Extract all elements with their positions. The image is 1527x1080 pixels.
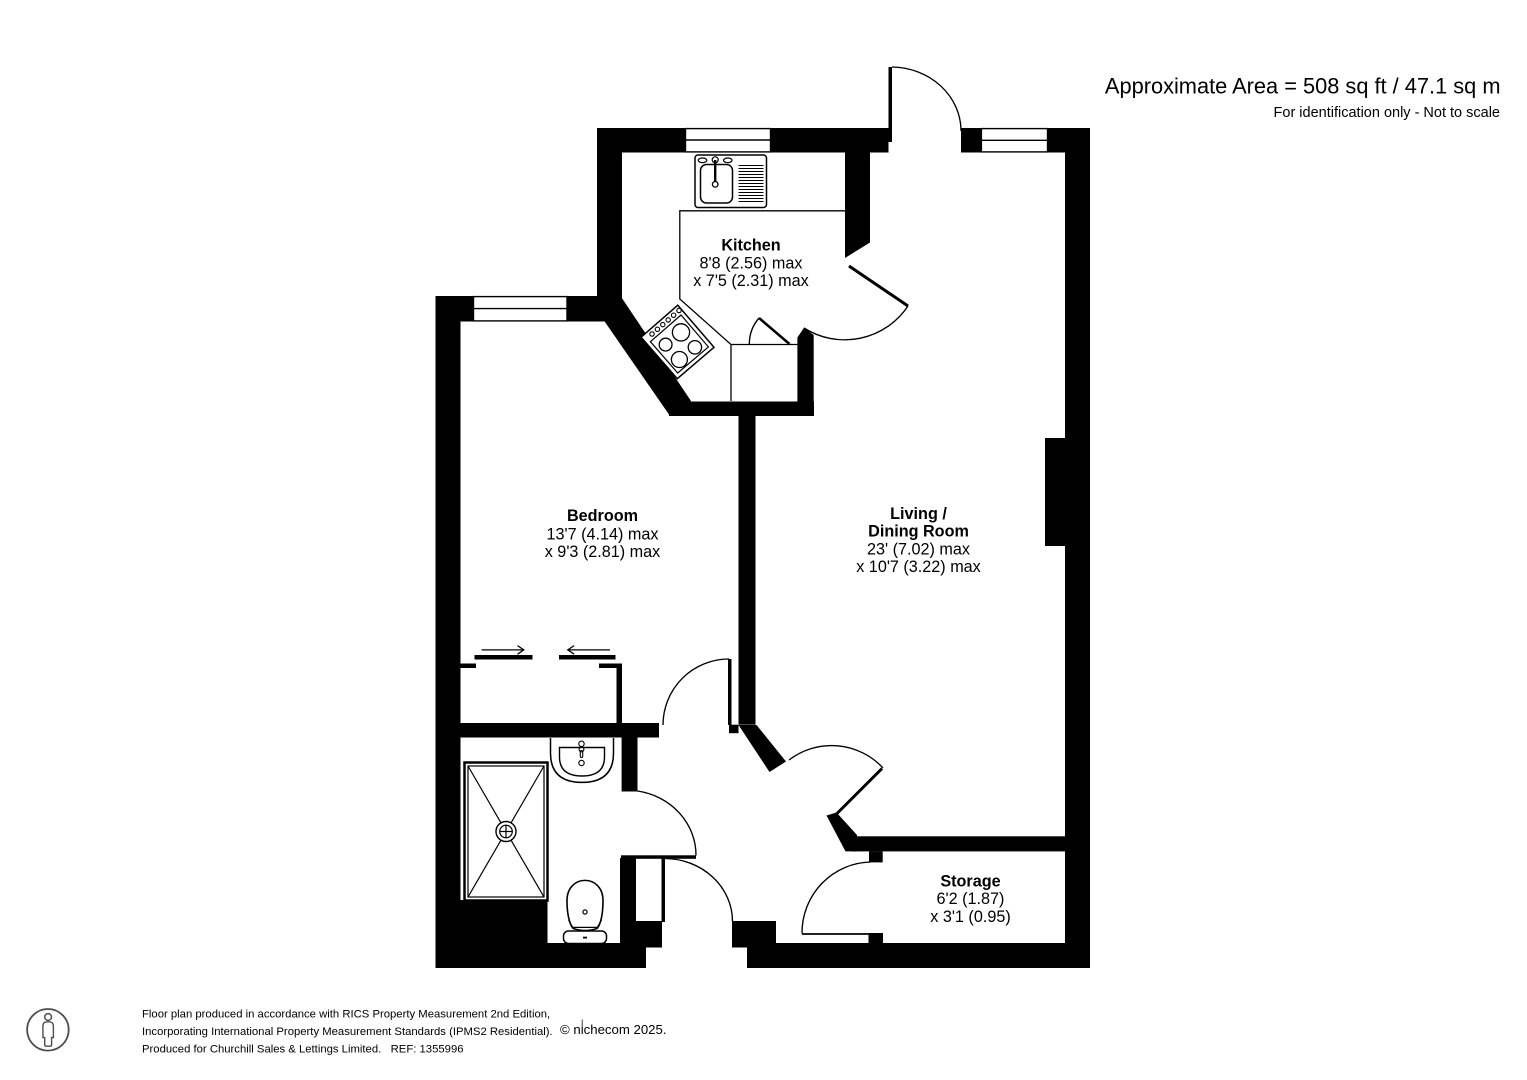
svg-text:Approximate Area = 508 sq ft /: Approximate Area = 508 sq ft / 47.1 sq m [1105,74,1501,99]
svg-text:x 7'5 (2.31) max: x 7'5 (2.31) max [693,272,809,290]
svg-text:Produced for Churchill Sales &: Produced for Churchill Sales & Lettings … [142,1043,464,1055]
svg-text:Storage: Storage [940,873,1000,891]
svg-text:Bedroom: Bedroom [567,507,638,525]
svg-text:Incorporating International Pr: Incorporating International Property Mea… [142,1026,553,1038]
svg-text:6'2 (1.87): 6'2 (1.87) [937,890,1005,908]
svg-text:Dining Room: Dining Room [868,523,969,541]
svg-text:23' (7.02) max: 23' (7.02) max [867,540,970,558]
svg-text:13'7 (4.14) max: 13'7 (4.14) max [547,526,659,544]
svg-text:Kitchen: Kitchen [721,237,780,255]
svg-text:Floor plan produced in accorda: Floor plan produced in accordance with R… [142,1009,550,1021]
svg-text:x 9'3 (2.81) max: x 9'3 (2.81) max [545,543,661,561]
svg-text:Living /: Living / [890,505,947,523]
svg-text:x 10'7 (3.22) max: x 10'7 (3.22) max [856,558,981,576]
svg-text:8'8 (2.56) max: 8'8 (2.56) max [700,254,803,272]
svg-text:For identification only - Not: For identification only - Not to scale [1274,105,1500,121]
svg-text:© nichecom 2025.: © nichecom 2025. [560,1022,667,1037]
svg-text:x 3'1 (0.95): x 3'1 (0.95) [930,908,1010,926]
